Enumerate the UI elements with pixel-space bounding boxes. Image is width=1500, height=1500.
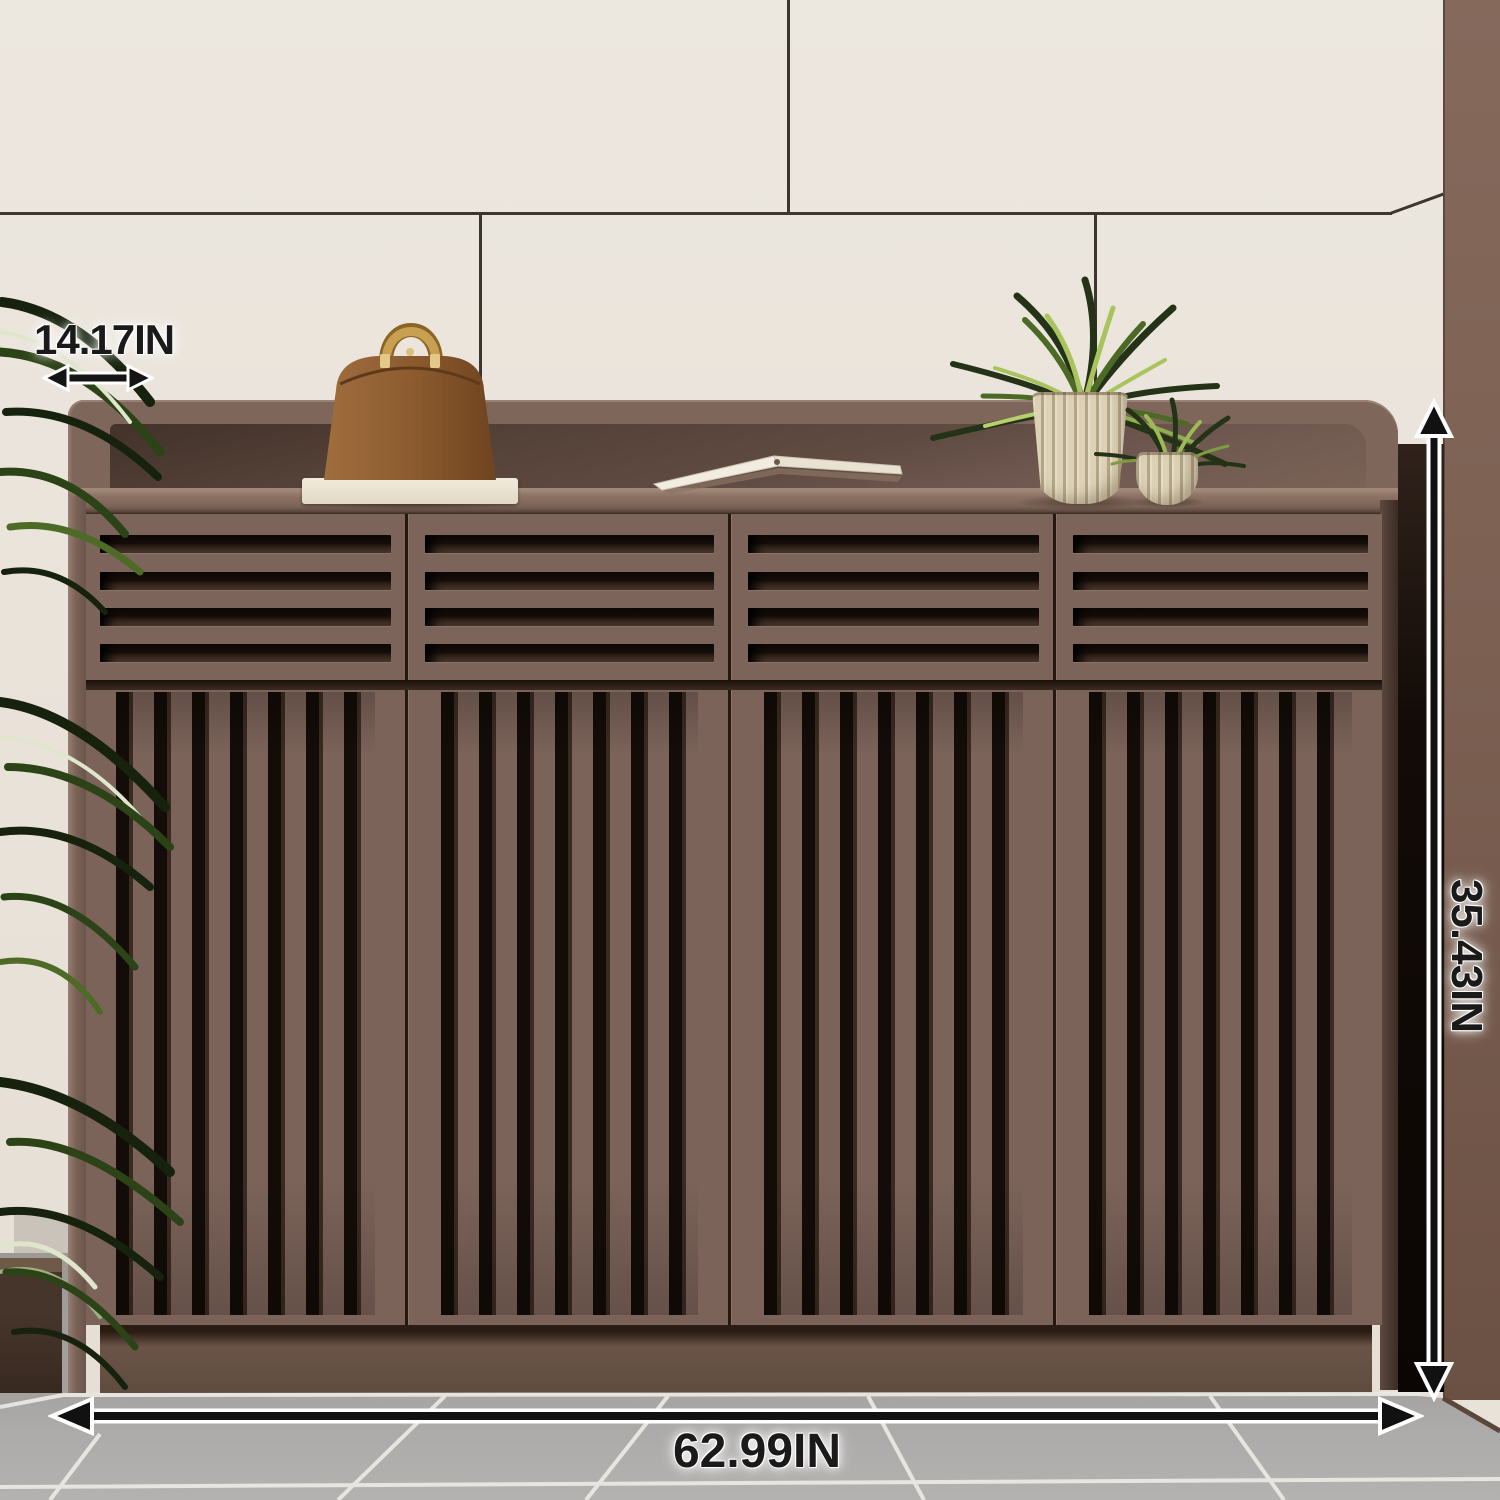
- cabinet-right-side-panel: [1380, 500, 1398, 1390]
- door-row: [86, 690, 1382, 1325]
- louver-slot: [1073, 535, 1368, 553]
- louver-slot: [1073, 572, 1368, 590]
- product-photo-scene: 14.17IN 35.43IN 62.99IN: [0, 0, 1500, 1500]
- louvered-drawer: [1059, 514, 1382, 682]
- width-dimension-label: 62.99IN: [673, 1424, 841, 1479]
- slatted-door: [734, 690, 1053, 1325]
- louver-slot: [425, 535, 714, 553]
- louver-slot: [1073, 608, 1368, 626]
- louver-slot: [748, 644, 1039, 662]
- louver-slot: [748, 535, 1039, 553]
- louver-slot: [1073, 644, 1368, 662]
- height-dimension-label: 35.43IN: [1441, 879, 1491, 1033]
- louver-slot: [425, 644, 714, 662]
- handbag-hardware: [406, 348, 414, 356]
- louver-slot: [748, 608, 1039, 626]
- slatted-door: [411, 690, 728, 1325]
- book-spine: [774, 459, 780, 465]
- drawer-row: [86, 514, 1382, 682]
- depth-dimension-label: 14.17IN: [34, 316, 174, 364]
- depth-dimension-arrow: [42, 358, 154, 398]
- louver-slot: [425, 608, 714, 626]
- louver-slot: [425, 572, 714, 590]
- slatted-door: [1059, 690, 1382, 1325]
- floor-plant-leaves: [0, 272, 215, 1397]
- louver-slot: [748, 572, 1039, 590]
- door-slats: [764, 692, 1023, 1315]
- handbag-clasp: [380, 354, 390, 368]
- louvered-drawer: [734, 514, 1053, 682]
- handbag-body: [324, 356, 496, 480]
- cabinet-plinth: [100, 1325, 1372, 1393]
- louvered-drawer: [411, 514, 728, 682]
- handbag: [298, 312, 520, 488]
- open-book: [648, 446, 916, 498]
- handbag-clasp: [430, 354, 440, 368]
- drawer-door-gap: [86, 680, 1382, 690]
- door-slats: [1089, 692, 1352, 1315]
- wall-grout-vertical: [787, 0, 790, 214]
- door-slats: [441, 692, 698, 1315]
- wall-grout-horizontal: [0, 212, 1392, 215]
